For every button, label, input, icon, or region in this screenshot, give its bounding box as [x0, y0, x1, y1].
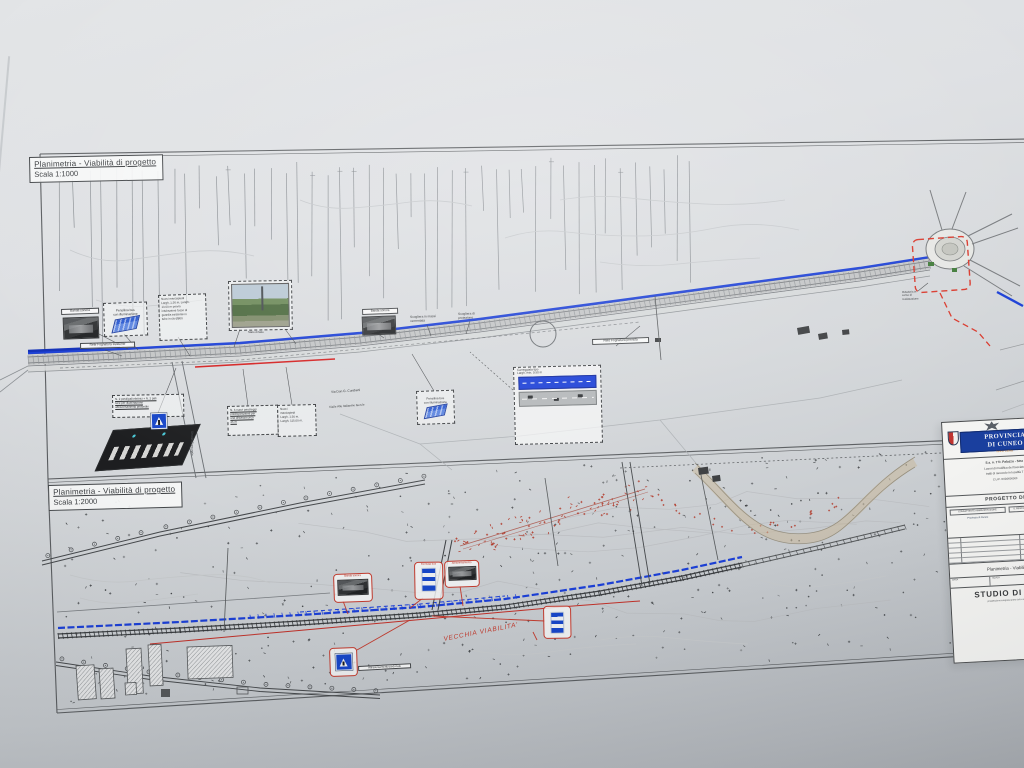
photo-banda-sonora-2 — [362, 315, 397, 335]
callout-pensilina-3: Pensilina bus con illuminazione — [416, 390, 455, 425]
sign-callout-pedonale — [329, 647, 358, 677]
studio-row: STUDIO DI INGE progettazione integrata o… — [951, 582, 1024, 615]
photo-callout-banda-sonora: Banda sonora — [333, 573, 373, 603]
label-rotatoria: Rotatoria in corso di realizzazione — [902, 290, 929, 301]
meta-scala: SCALA — [990, 575, 1024, 586]
responsabile-column: IL RESPONSABILE DEL PROCEDIMENTO Ing. Uf… — [1008, 504, 1024, 533]
label-strada-comunale: Strada Comunale — [189, 431, 193, 473]
label-scogliera-massi: Scogliera in massi cementata — [410, 315, 446, 324]
title-block-columns: COMMITTENTE AMMINISTRAZIONE Provincia di… — [946, 502, 1024, 539]
committente-column: COMMITTENTE AMMINISTRAZIONE Provincia di… — [950, 507, 1007, 536]
photo-banda-sonora-1 — [63, 316, 100, 339]
photo-banda-sonora-3 — [337, 579, 369, 596]
pedestrian-crossing-sign-icon — [335, 653, 353, 671]
inset-caption: Carreggiata tipo Largh. min. 9.50 m — [517, 368, 542, 375]
sign-callout-bus-1: Fermata bus — [414, 561, 444, 600]
revision-table — [948, 533, 1024, 565]
responsabile-header: IL RESPONSABILE DEL PROCEDIMENTO — [1008, 504, 1024, 512]
top-panel-title: Planimetria - Viabilità di progetto Scal… — [29, 154, 164, 183]
sign-callout-bus-2 — [543, 606, 572, 639]
logo-line-2: DI CUNEO — [987, 439, 1023, 448]
top-panel-scale: Scala 1:1000 — [34, 167, 156, 179]
label-scogliera-protezione: Scogliera di protezione — [458, 312, 488, 321]
shield-icon — [948, 431, 960, 446]
inset-roadway-bar — [519, 390, 597, 407]
photo-landscape — [231, 283, 290, 328]
callout-parcheggi: N. 6 nuovi parcheggi predisposizione per… — [227, 405, 279, 436]
sign-callout-caption: Fermata bus — [421, 564, 436, 567]
sign-triangle — [155, 417, 163, 425]
photographed-plan-sheet: Planimetria - Viabilità di progetto Scal… — [0, 0, 1024, 768]
title-block: PROVINCIA DI CUNEO Settore Viabilità S.s… — [941, 416, 1024, 664]
title-block-logo-row: PROVINCIA DI CUNEO Settore Viabilità — [942, 417, 1024, 460]
title-block-project: S.s. n. 7 fr. Palazzo - Stra Lavori di m… — [944, 454, 1024, 497]
callout-posti-auto: N. 2 posti/pali elettrici + N. 2 pali lu… — [112, 394, 184, 418]
zebra-stripes — [108, 442, 184, 460]
bus-stop-sign-icon — [421, 568, 436, 592]
map-linework — [0, 0, 1024, 768]
photo-callout-caption: Banda sonora — [344, 575, 361, 579]
photo-caption: Stato di fatto — [248, 331, 264, 334]
pedestrian-crossing-sign-icon — [151, 413, 168, 430]
callout-marciapiedi-2: Nuovi marciapiedi Largh. 1.50 m. Lungh. … — [277, 404, 317, 437]
callout-pensilina-1: Pensilina bus con illuminazione — [103, 301, 148, 337]
photo-frame-stato-di-fatto — [228, 280, 293, 331]
committente-value: Provincia di Cuneo — [950, 514, 1006, 520]
bus-shelter-render — [424, 403, 448, 419]
car-icon — [578, 394, 583, 397]
car-icon — [554, 398, 559, 401]
photo-attraversamento — [448, 566, 476, 581]
callout-marciapiedi-1: Nuovi marciapiedi Largh. 1.50 m, Lungh. … — [158, 293, 208, 341]
inset-road-section-detail: Carreggiata tipo Largh. min. 9.50 m — [513, 365, 603, 445]
bus-shelter-render — [111, 315, 140, 334]
bottom-panel-scale: Scala 1:2000 — [53, 495, 175, 507]
bottom-panel-title: Planimetria - Viabilità di progetto Scal… — [48, 481, 183, 510]
responsabile-value: Ing. Ufficio Tecnico — [1008, 511, 1024, 517]
sign-triangle — [339, 658, 347, 666]
bottom-panel-linework — [42, 450, 1006, 703]
photo-callout-attraversamento: Attraversamento — [444, 560, 480, 588]
car-icon — [528, 395, 533, 398]
bus-stop-sign-icon — [550, 611, 564, 633]
inset-new-pavement-bar — [518, 375, 596, 390]
